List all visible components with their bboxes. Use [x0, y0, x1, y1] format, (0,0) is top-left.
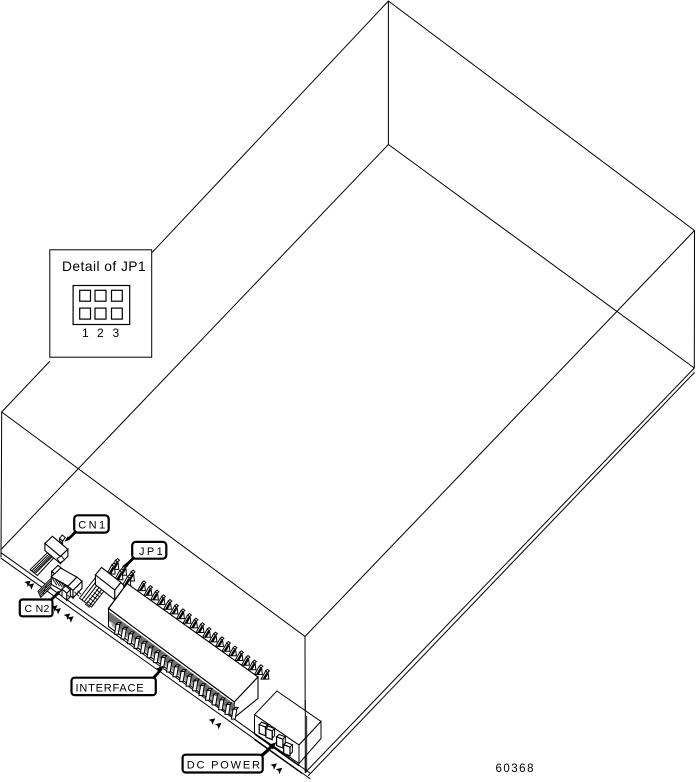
svg-text:1: 1 [82, 326, 89, 340]
svg-text:2: 2 [97, 326, 104, 340]
svg-text:C N2: C N2 [25, 603, 50, 615]
svg-text:CN1: CN1 [78, 520, 107, 532]
svg-text:INTERFACE: INTERFACE [76, 682, 145, 694]
svg-text:JP1: JP1 [139, 546, 165, 558]
svg-text:3: 3 [113, 326, 120, 340]
svg-text:DC POWER: DC POWER [187, 760, 262, 772]
svg-text:Detail of JP1: Detail of JP1 [62, 259, 146, 274]
svg-text:60368: 60368 [496, 763, 535, 775]
